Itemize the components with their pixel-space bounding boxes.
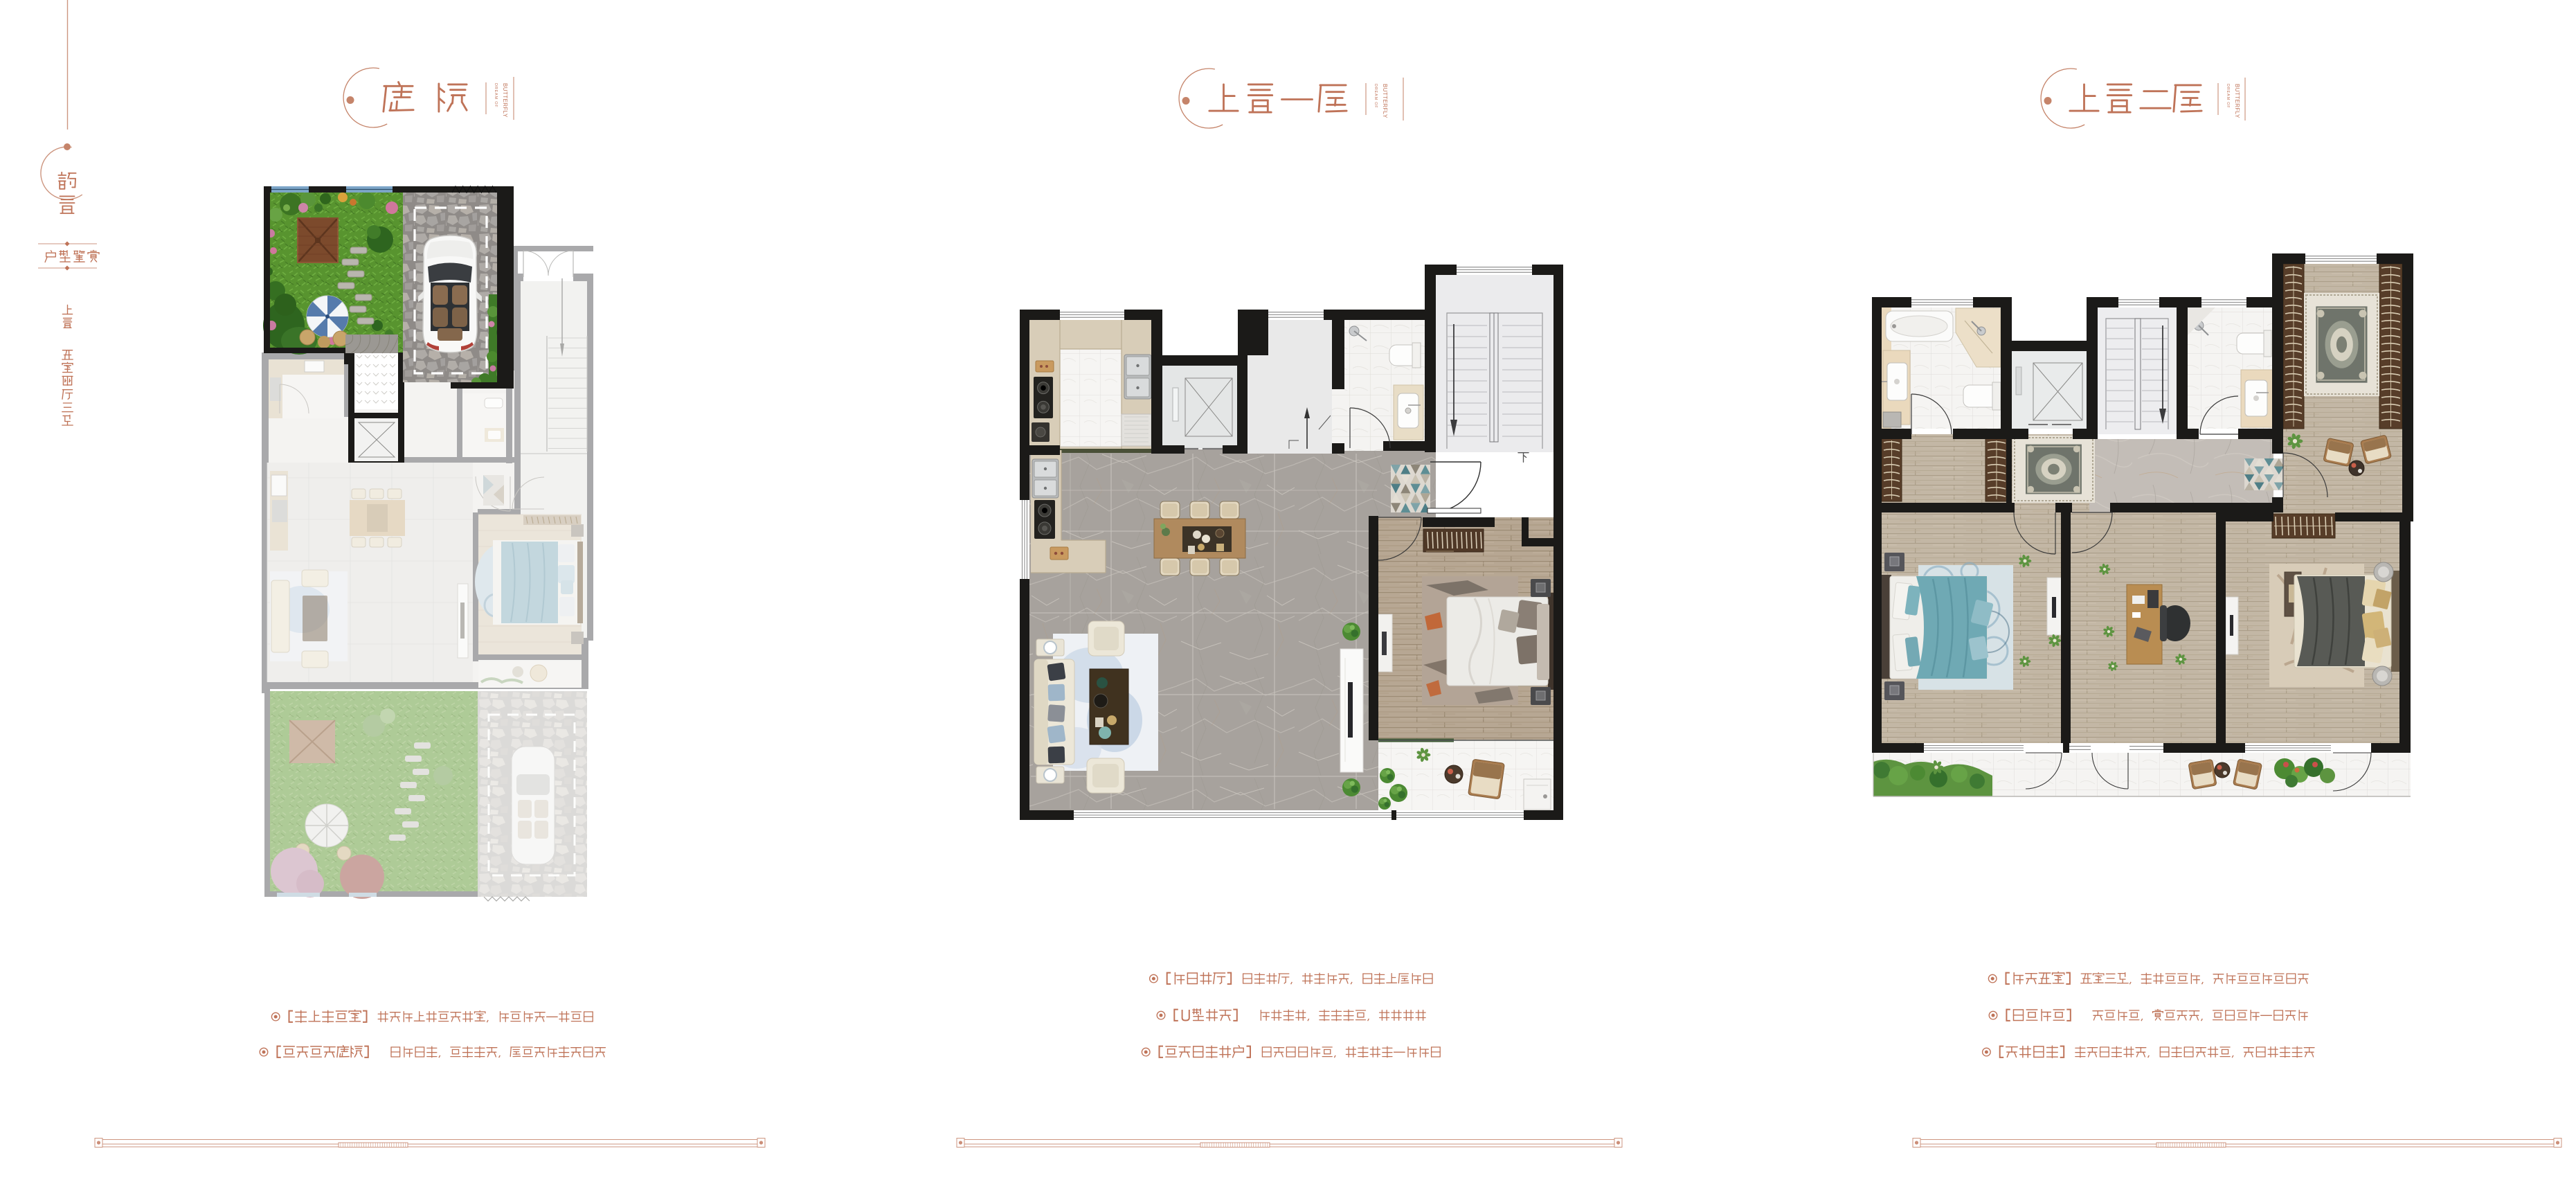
svg-text:DREAM OF: DREAM OF xyxy=(1373,84,1378,108)
svg-text:BUTTERFLY: BUTTERFLY xyxy=(2234,84,2240,118)
svg-text:DREAM OF: DREAM OF xyxy=(494,83,498,107)
svg-text:DREAM OF: DREAM OF xyxy=(2226,84,2230,108)
svg-text:BUTTERFLY: BUTTERFLY xyxy=(1382,84,1388,118)
svg-text:BUTTERFLY: BUTTERFLY xyxy=(502,83,508,118)
